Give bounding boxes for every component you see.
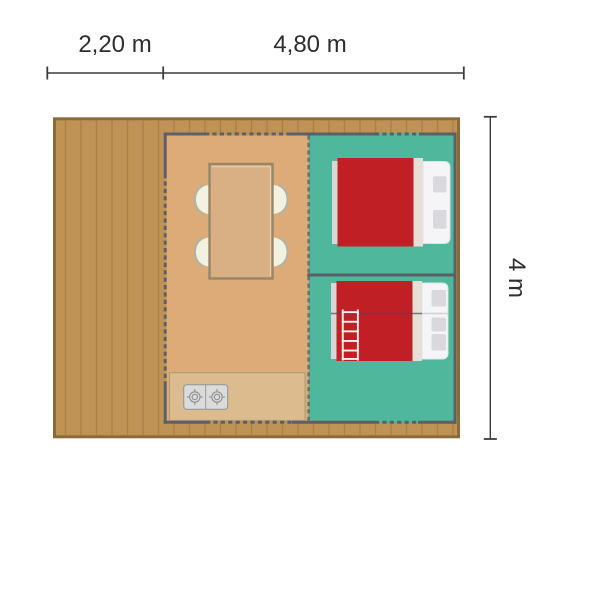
svg-text:2,20 m: 2,20 m [78, 31, 151, 58]
svg-text:4 m: 4 m [503, 258, 530, 298]
svg-text:4,80 m: 4,80 m [273, 31, 346, 58]
